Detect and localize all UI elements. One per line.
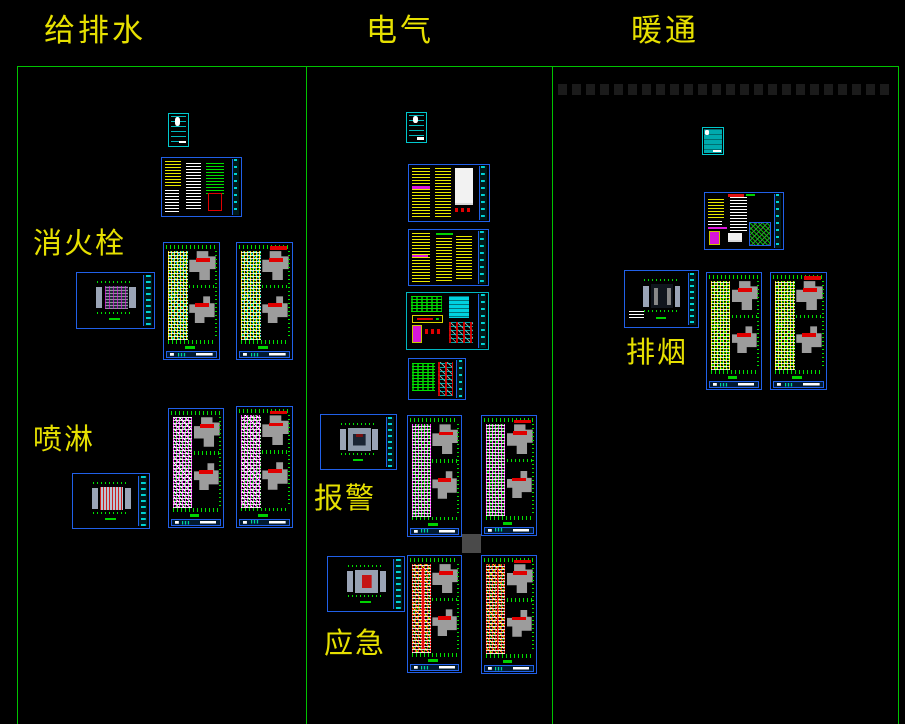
red-annotation <box>439 571 453 574</box>
building-outline <box>507 610 532 637</box>
drawing-title-underline <box>258 346 268 349</box>
red-annotation <box>270 411 287 415</box>
sheet-detail <box>774 194 782 248</box>
sheet-detail <box>208 193 222 212</box>
sheet-detail <box>449 322 473 343</box>
sheet-detail <box>417 137 425 139</box>
red-annotation <box>803 288 817 291</box>
sheet-detail <box>435 168 451 217</box>
red-annotation <box>269 258 283 261</box>
red-annotation <box>804 276 821 279</box>
sheet-detail <box>412 186 430 188</box>
building-wing <box>380 571 386 592</box>
sheet-detail <box>730 197 747 231</box>
dimension-ticks-top <box>93 482 128 484</box>
dimension-ticks-bottom <box>348 595 383 597</box>
dimension-ticks-bottom <box>168 340 215 343</box>
sheet-detail <box>411 296 442 312</box>
red-annotation <box>269 423 283 427</box>
hydrant-site-plan[interactable] <box>76 272 155 329</box>
emergency-site-plan[interactable] <box>327 556 405 612</box>
title-block <box>171 519 222 526</box>
site-plan-core <box>355 570 378 593</box>
building-outline <box>432 471 456 499</box>
electrical-cover-sheet[interactable] <box>406 112 427 143</box>
title-block <box>239 351 291 358</box>
sheet-detail <box>412 168 430 217</box>
dimension-ticks-top <box>166 245 216 248</box>
selection-grip-square[interactable] <box>462 534 481 553</box>
dimension-ticks-mid <box>262 450 288 454</box>
hydrant-floor-plan-2[interactable] <box>236 242 293 360</box>
sheet-detail <box>449 296 468 317</box>
dimension-ticks-mid <box>507 459 533 463</box>
building-wing <box>675 286 681 307</box>
dimension-ticks-bottom <box>341 453 376 455</box>
red-annotation <box>268 469 282 473</box>
red-riser-line <box>497 568 498 650</box>
drawing-title-underline <box>258 514 268 517</box>
site-plan-core <box>100 487 123 510</box>
building-outline <box>432 424 457 454</box>
electrical-notes-sheet-1[interactable] <box>408 164 490 222</box>
drawing-title-underline <box>428 523 438 526</box>
sheet-detail <box>455 168 473 205</box>
building-outline <box>432 609 456 636</box>
dimension-ticks-bottom <box>97 312 132 314</box>
drawing-title-underline <box>428 659 438 662</box>
dimension-ticks-bottom <box>93 512 128 514</box>
sheet-detail <box>479 166 487 220</box>
plan-detail-strip <box>412 564 431 653</box>
faint-dash-row <box>558 84 893 95</box>
dimension-ticks-mid <box>432 459 457 463</box>
building-outline <box>262 462 287 490</box>
building-outline <box>507 564 533 593</box>
dimension-ticks-bottom <box>241 508 288 512</box>
sheet-detail <box>412 255 428 257</box>
hvac-notes-sheet[interactable] <box>704 192 784 250</box>
alarm-floor-plan-1[interactable] <box>407 415 462 537</box>
building-outline <box>796 281 822 310</box>
building-outline <box>194 463 219 490</box>
sheet-detail <box>175 117 181 125</box>
title-block <box>484 665 535 672</box>
building-outline <box>194 417 220 447</box>
dimension-ticks-bottom <box>644 310 678 312</box>
emergency-floor-plan-2[interactable] <box>481 555 537 674</box>
building-outline <box>432 564 457 593</box>
electrical-notes-sheet-2[interactable] <box>408 229 489 286</box>
dimension-ticks-mid <box>262 285 288 288</box>
site-plan-core <box>348 428 371 451</box>
drawing-title-underline <box>728 376 738 379</box>
smoke-exhaust-floor-plan-1[interactable] <box>706 272 762 390</box>
sheet-detail <box>749 222 771 246</box>
building-outline <box>507 471 532 498</box>
drawing-title-underline <box>109 318 120 320</box>
red-annotation <box>512 617 526 621</box>
building-wing <box>340 429 346 450</box>
sprinkler-floor-plan-1[interactable] <box>168 408 224 528</box>
dimension-ticks-bottom <box>486 654 532 658</box>
dimension-ticks-bottom <box>711 370 757 373</box>
building-outline <box>262 415 288 445</box>
sheet-detail <box>436 233 453 235</box>
dimension-ticks-top <box>410 418 458 422</box>
dimension-ticks-mid <box>432 598 457 601</box>
title-block <box>143 275 151 326</box>
dimension-ticks-right <box>532 564 534 652</box>
title-block <box>410 664 460 671</box>
red-annotation <box>196 258 210 261</box>
red-annotation <box>512 478 526 482</box>
dimension-ticks-right <box>219 417 221 506</box>
electrical-detail-sheet[interactable] <box>408 358 466 400</box>
dimension-ticks-mid <box>507 598 533 602</box>
sheet-detail <box>436 238 452 282</box>
red-annotation <box>439 432 453 436</box>
dimension-ticks-top <box>709 275 758 278</box>
drawing-title-underline <box>503 660 513 663</box>
dimension-ticks-mid <box>796 315 822 318</box>
building-outline <box>732 326 757 353</box>
dimension-ticks-right <box>288 415 290 505</box>
red-annotation <box>438 478 452 482</box>
title-block <box>239 519 291 526</box>
red-annotation <box>513 431 527 435</box>
sprinkler-floor-plan-2[interactable] <box>236 406 293 528</box>
dimension-ticks-top <box>348 565 383 567</box>
sheet-detail <box>425 329 441 335</box>
drawing-title-underline <box>105 518 116 520</box>
dimension-ticks-bottom <box>241 340 288 343</box>
building-outline <box>262 251 288 280</box>
red-annotation <box>737 333 751 336</box>
plan-detail-strip <box>775 281 795 370</box>
title-block <box>393 559 401 609</box>
building-wing <box>96 287 102 308</box>
plan-detail-strip <box>412 424 431 516</box>
smoke-exhaust-site-plan[interactable] <box>624 270 699 328</box>
drawing-title-underline <box>360 601 371 603</box>
sheet-detail <box>206 163 223 197</box>
plumbing-cover-sheet[interactable] <box>168 113 189 147</box>
sheet-detail <box>165 161 181 187</box>
building-wing <box>125 488 131 509</box>
dimension-ticks-top <box>644 279 678 281</box>
dimension-ticks-mid <box>732 315 758 318</box>
plan-detail-strip <box>711 281 730 370</box>
red-annotation <box>514 420 530 424</box>
title-block <box>709 381 760 388</box>
site-plan-core <box>105 286 128 309</box>
dimension-ticks-top <box>171 411 220 415</box>
sheet-detail <box>456 360 463 398</box>
red-annotation <box>802 333 816 336</box>
sheet-detail <box>708 199 724 220</box>
dimension-ticks-right <box>457 424 459 514</box>
drawing-title-underline <box>656 317 666 319</box>
plan-detail-strip <box>486 564 505 654</box>
sheet-detail <box>412 325 422 343</box>
sheet-detail <box>165 190 179 212</box>
red-annotation <box>270 246 287 249</box>
cad-model-space: 给排水 电气 暖通 消火栓 喷淋 报警 应急 排烟 <box>0 0 905 724</box>
dimension-ticks-right <box>532 424 534 513</box>
sheet-detail <box>478 294 486 348</box>
building-wing <box>92 488 98 509</box>
plan-detail-strip <box>241 415 261 507</box>
dimension-ticks-top <box>97 281 132 283</box>
drawing-title-underline <box>353 459 364 461</box>
hvac-cover-sheet[interactable] <box>702 127 724 155</box>
dimension-ticks-bottom <box>775 370 822 373</box>
plumbing-notes-sheet[interactable] <box>161 157 242 217</box>
dimension-ticks-top <box>341 423 376 425</box>
dimension-ticks-right <box>822 281 824 368</box>
plan-detail-strip <box>241 251 261 340</box>
red-annotation <box>738 288 752 291</box>
smoke-exhaust-floor-plan-2[interactable] <box>770 272 827 390</box>
title-block <box>166 351 218 358</box>
building-outline <box>796 326 821 353</box>
sheet-detail <box>456 236 472 281</box>
red-riser-line <box>422 568 423 649</box>
sheet-detail <box>478 231 486 284</box>
electrical-legend-sheet[interactable] <box>406 292 489 350</box>
sheet-detail <box>728 233 742 242</box>
alarm-site-plan[interactable] <box>320 414 397 470</box>
title-block <box>484 527 535 534</box>
red-annotation <box>514 560 530 564</box>
dimension-ticks-bottom <box>412 653 458 656</box>
note-text-rows <box>629 311 644 320</box>
building-outline <box>189 296 214 323</box>
sheet-detail <box>709 231 720 244</box>
drawing-title-underline <box>792 376 802 379</box>
sheet-detail <box>412 233 429 281</box>
building-wing <box>347 571 353 592</box>
building-outline <box>262 296 287 323</box>
building-outline <box>189 251 215 280</box>
sheet-detail <box>412 363 434 391</box>
building-outline <box>732 281 758 310</box>
drawing-title-underline <box>503 522 513 525</box>
dimension-ticks-right <box>215 251 217 338</box>
dimension-ticks-mid <box>189 285 215 288</box>
building-wing <box>372 429 378 450</box>
dimension-ticks-right <box>457 564 459 651</box>
dimension-ticks-right <box>757 281 759 368</box>
dimension-ticks-bottom <box>173 508 219 512</box>
sprinkler-site-plan[interactable] <box>72 473 150 529</box>
drawing-title-underline <box>185 346 195 349</box>
alarm-floor-plan-2[interactable] <box>481 415 537 536</box>
red-annotation <box>200 424 214 428</box>
plan-detail-strip <box>168 251 188 340</box>
red-annotation <box>199 470 213 474</box>
sheet-detail <box>455 208 473 212</box>
red-annotation <box>195 303 209 306</box>
sheet-detail <box>232 159 240 215</box>
sheet-detail <box>412 315 443 322</box>
hydrant-floor-plan-1[interactable] <box>163 242 220 360</box>
dimension-ticks-bottom <box>486 516 532 520</box>
site-plan-core <box>651 284 673 308</box>
building-wing <box>129 287 135 308</box>
red-annotation <box>268 303 282 306</box>
sheet-detail <box>708 227 727 229</box>
dimension-ticks-top <box>410 558 458 561</box>
title-block <box>688 273 696 325</box>
title-block <box>386 417 394 467</box>
plan-detail-strip <box>173 417 192 508</box>
dimension-ticks-mid <box>194 451 220 455</box>
sheet-detail <box>705 130 709 135</box>
title-block <box>773 381 825 388</box>
sheet-detail <box>746 194 755 196</box>
dimension-ticks-right <box>288 251 290 338</box>
emergency-floor-plan-1[interactable] <box>407 555 462 673</box>
sheet-detail <box>713 150 721 152</box>
drawing-title-underline <box>190 514 200 517</box>
sheets-layer <box>0 0 905 724</box>
dimension-ticks-bottom <box>412 517 458 521</box>
sheet-detail <box>186 163 202 212</box>
title-block <box>138 476 146 526</box>
title-block <box>410 528 460 535</box>
building-wing <box>643 286 649 307</box>
sheet-detail <box>438 362 453 396</box>
sheet-detail <box>179 141 187 144</box>
building-outline <box>507 424 533 454</box>
red-annotation <box>513 571 527 575</box>
plan-detail-strip <box>486 424 505 516</box>
red-annotation <box>438 616 452 619</box>
